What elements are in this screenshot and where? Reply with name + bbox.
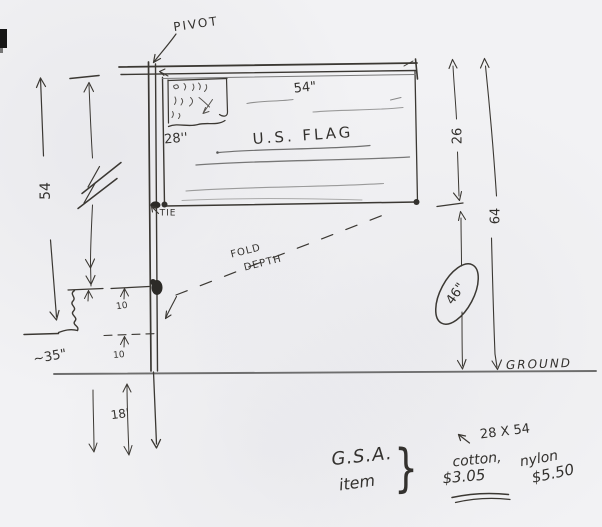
flag-canton (168, 79, 228, 127)
fold-depth-line (166, 213, 391, 319)
flag-drop-label: 26 (452, 128, 465, 145)
scan-artifact (0, 29, 7, 53)
tie-label: TIE (160, 210, 177, 219)
ground-label: GROUND (506, 357, 572, 371)
cotton-price-label: $3.05 (442, 468, 486, 487)
dim-left-crossed (70, 76, 121, 287)
flag-stripes (182, 98, 410, 201)
below-ground-label: 18' (110, 407, 130, 421)
top-rail (119, 59, 418, 79)
cleat-marker (150, 279, 163, 295)
gap-upper-label: 10 (116, 302, 129, 313)
gap-lower-label: 10 (113, 351, 125, 361)
sketch-drawing (0, 0, 602, 527)
overall-height-label: 64 (490, 208, 503, 225)
flagpole (149, 62, 161, 448)
flag-installation-sketch: PIVOT 54" 28'' U.S. FLAG TIE FOLD DEPTH … (0, 0, 602, 527)
wall-bracket (24, 287, 149, 335)
canton-width-label: 28'' (164, 131, 189, 146)
brace-glyph: } (394, 443, 418, 495)
flag-width-label: 54" (293, 80, 317, 95)
star-scribbles (172, 83, 213, 119)
pole-length-label: 54 (39, 182, 53, 200)
pivot-arrow (154, 34, 177, 63)
